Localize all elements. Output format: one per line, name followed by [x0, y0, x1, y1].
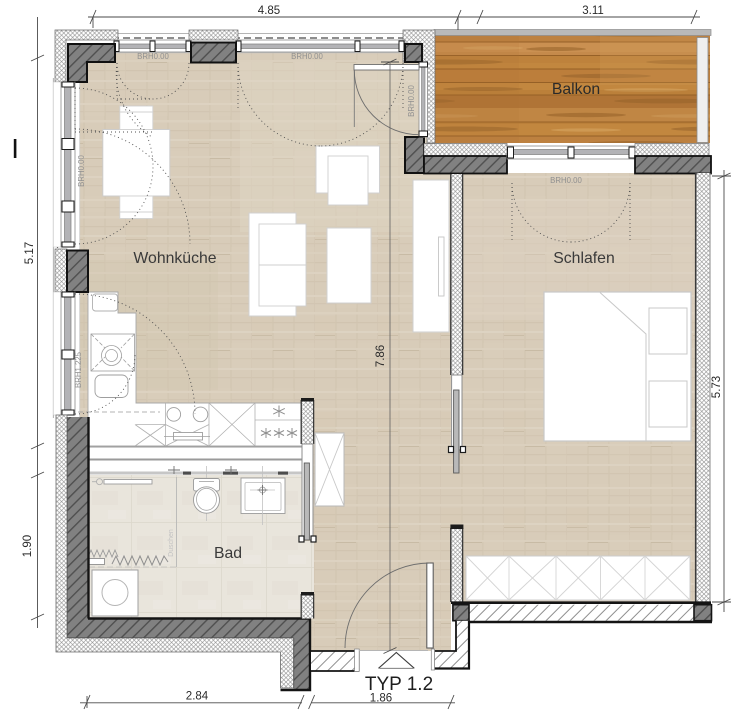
- svg-text:Duschen: Duschen: [168, 529, 175, 557]
- svg-text:BRH0.00: BRH0.00: [77, 155, 86, 187]
- svg-text:1.90: 1.90: [22, 535, 34, 557]
- svg-text:5.17: 5.17: [24, 242, 36, 264]
- svg-text:Wohnküche: Wohnküche: [133, 250, 216, 267]
- svg-text:4.85: 4.85: [258, 5, 280, 17]
- svg-text:Schlafen: Schlafen: [553, 250, 614, 267]
- svg-text:Balkon: Balkon: [552, 81, 600, 98]
- svg-text:BRH0.00: BRH0.00: [550, 176, 582, 185]
- svg-text:2.84: 2.84: [186, 691, 209, 703]
- svg-text:Bad: Bad: [214, 545, 242, 562]
- svg-text:BRH1.225: BRH1.225: [74, 351, 83, 388]
- svg-text:TYP 1.2: TYP 1.2: [365, 674, 433, 695]
- svg-text:BRH0.00: BRH0.00: [137, 52, 169, 61]
- svg-text:3.11: 3.11: [582, 5, 604, 17]
- svg-text:7.86: 7.86: [375, 345, 387, 367]
- svg-text:5.73: 5.73: [711, 376, 723, 398]
- svg-text:BRH0.00: BRH0.00: [291, 52, 323, 61]
- svg-text:BRH0.00: BRH0.00: [407, 85, 416, 117]
